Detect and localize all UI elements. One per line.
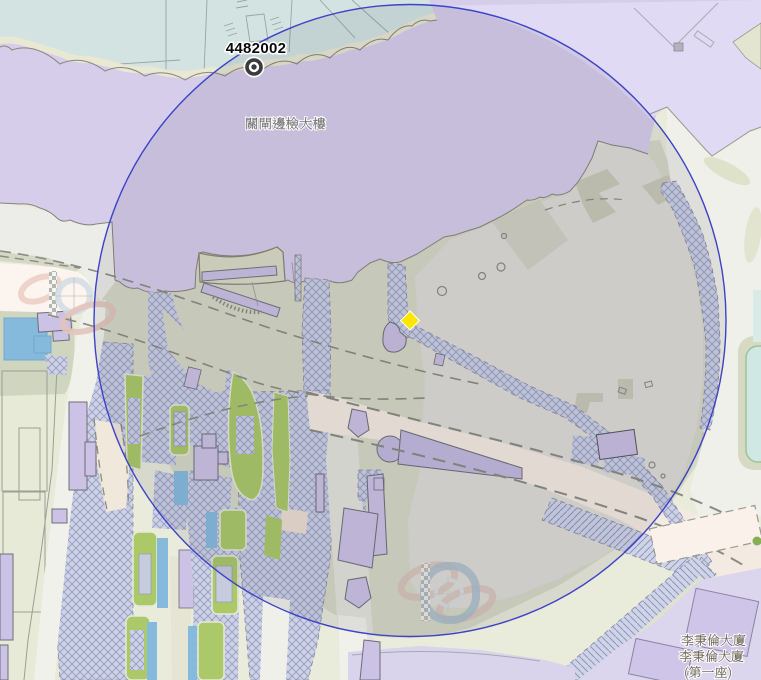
svg-text:4482002: 4482002 xyxy=(226,40,287,57)
